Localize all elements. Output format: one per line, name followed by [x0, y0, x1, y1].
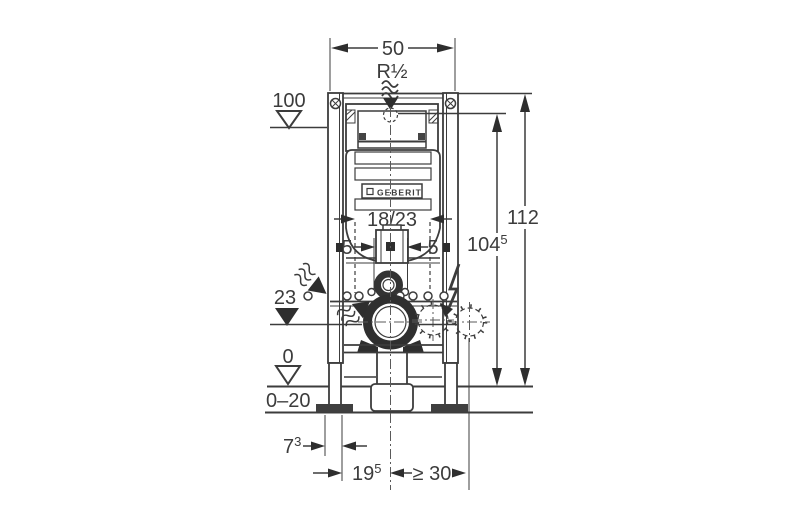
level-0-label: 0 — [282, 346, 293, 368]
installation-drawing: GEBERIT 18/23 5 5 — [0, 0, 810, 528]
brand-plate: GEBERIT — [362, 184, 422, 198]
level-marker-0: 0 — [276, 346, 300, 384]
dim-overall-height-label: 112 — [507, 207, 539, 229]
level-marker-100: 100 — [270, 90, 327, 128]
corner-fitting — [418, 133, 425, 140]
dim-outlet-offset-label: 195 — [352, 461, 381, 485]
dim-min-clearance-label: ≥ 30 — [413, 463, 452, 485]
floor-buildup-label: 0–20 — [266, 390, 311, 412]
screw-icon — [446, 99, 456, 109]
brand-logo-text: GEBERIT — [377, 188, 422, 198]
dim-outlet-offset: 195 — [313, 461, 381, 485]
dim-foot-depth-label: 73 — [283, 434, 301, 458]
dim-offset-left-label: 5 — [341, 237, 352, 259]
supply-thread-label: R½ — [376, 61, 407, 83]
drain-pipe — [371, 353, 413, 412]
screw-icon — [331, 99, 341, 109]
corner-fitting — [359, 133, 366, 140]
cistern-slat — [355, 152, 431, 164]
open-triangle-icon — [277, 111, 301, 128]
open-triangle-icon — [276, 366, 300, 384]
cistern-slat — [355, 168, 431, 180]
rail-clip — [443, 243, 450, 252]
filled-triangle-icon — [275, 308, 299, 326]
foot-plate — [431, 404, 468, 412]
drawing-svg: GEBERIT 18/23 5 5 — [0, 0, 810, 528]
dim-width-label: 50 — [382, 38, 404, 60]
level-23-label: 23 — [274, 287, 296, 309]
level-100-label: 100 — [272, 90, 305, 112]
foot-plate — [316, 404, 353, 412]
dim-offset-right-label: 5 — [427, 237, 438, 259]
dim-min-clearance: ≥ 30 — [390, 463, 466, 485]
inspection-box — [346, 104, 438, 151]
